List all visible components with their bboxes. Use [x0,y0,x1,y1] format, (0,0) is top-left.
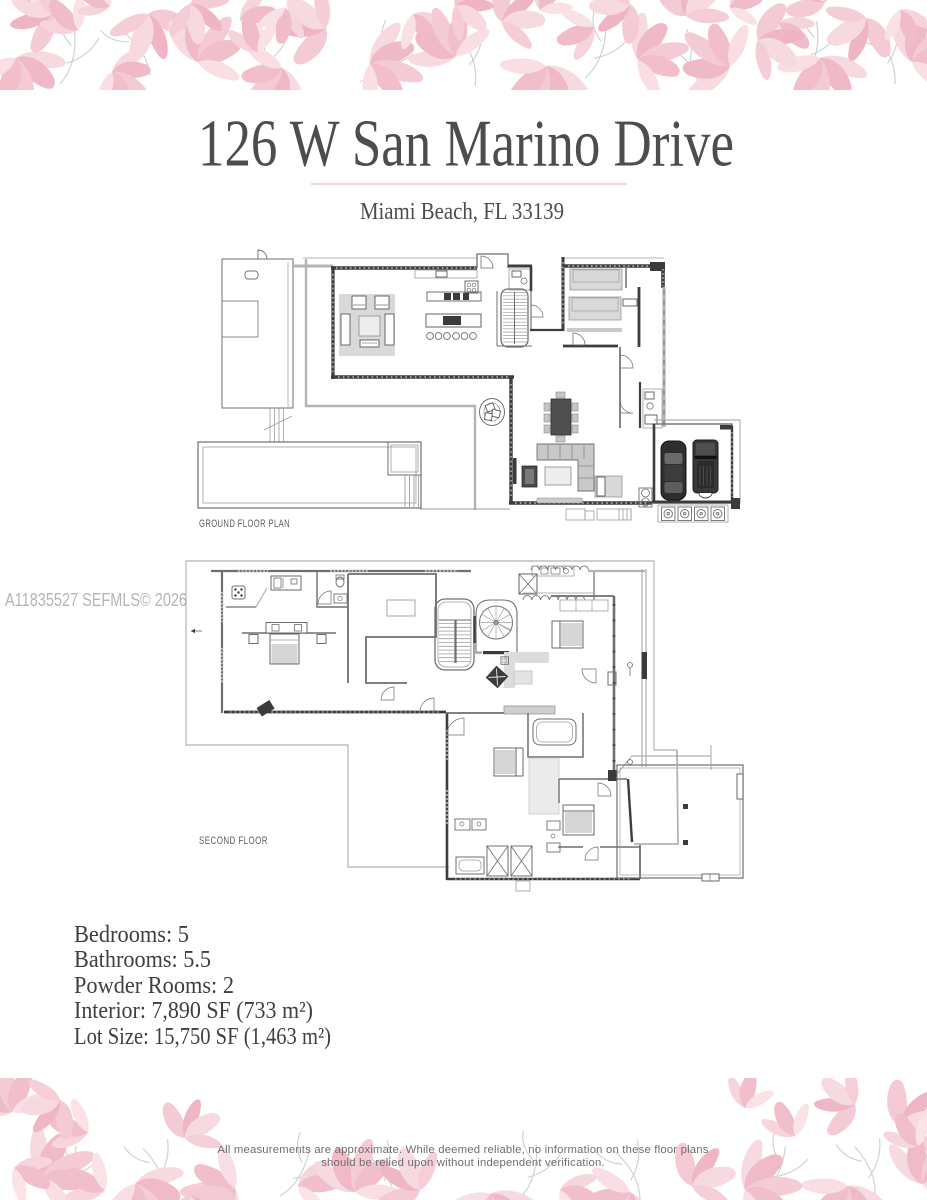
svg-text:Powder Rooms: 2: Powder Rooms: 2 [74,972,234,999]
svg-text:SECOND FLOOR: SECOND FLOOR [199,835,268,847]
svg-text:Interior: 7,890 SF (733 m²): Interior: 7,890 SF (733 m²) [74,997,313,1024]
svg-text:All measurements are approxima: All measurements are approximate. While … [217,1144,708,1156]
svg-text:126 W San Marino Drive: 126 W San Marino Drive [198,107,734,181]
svg-text:A11835527 SEFMLS© 2026: A11835527 SEFMLS© 2026 [5,589,187,610]
svg-text:Bathrooms: 5.5: Bathrooms: 5.5 [74,946,211,973]
svg-text:GROUND FLOOR PLAN: GROUND FLOOR PLAN [199,518,290,530]
svg-text:Miami Beach, FL 33139: Miami Beach, FL 33139 [360,199,564,225]
svg-text:Bedrooms: 5: Bedrooms: 5 [74,921,189,948]
svg-text:should be relied upon without: should be relied upon without independen… [321,1157,605,1169]
svg-text:Lot Size: 15,750 SF (1,463 m²): Lot Size: 15,750 SF (1,463 m²) [74,1023,331,1050]
